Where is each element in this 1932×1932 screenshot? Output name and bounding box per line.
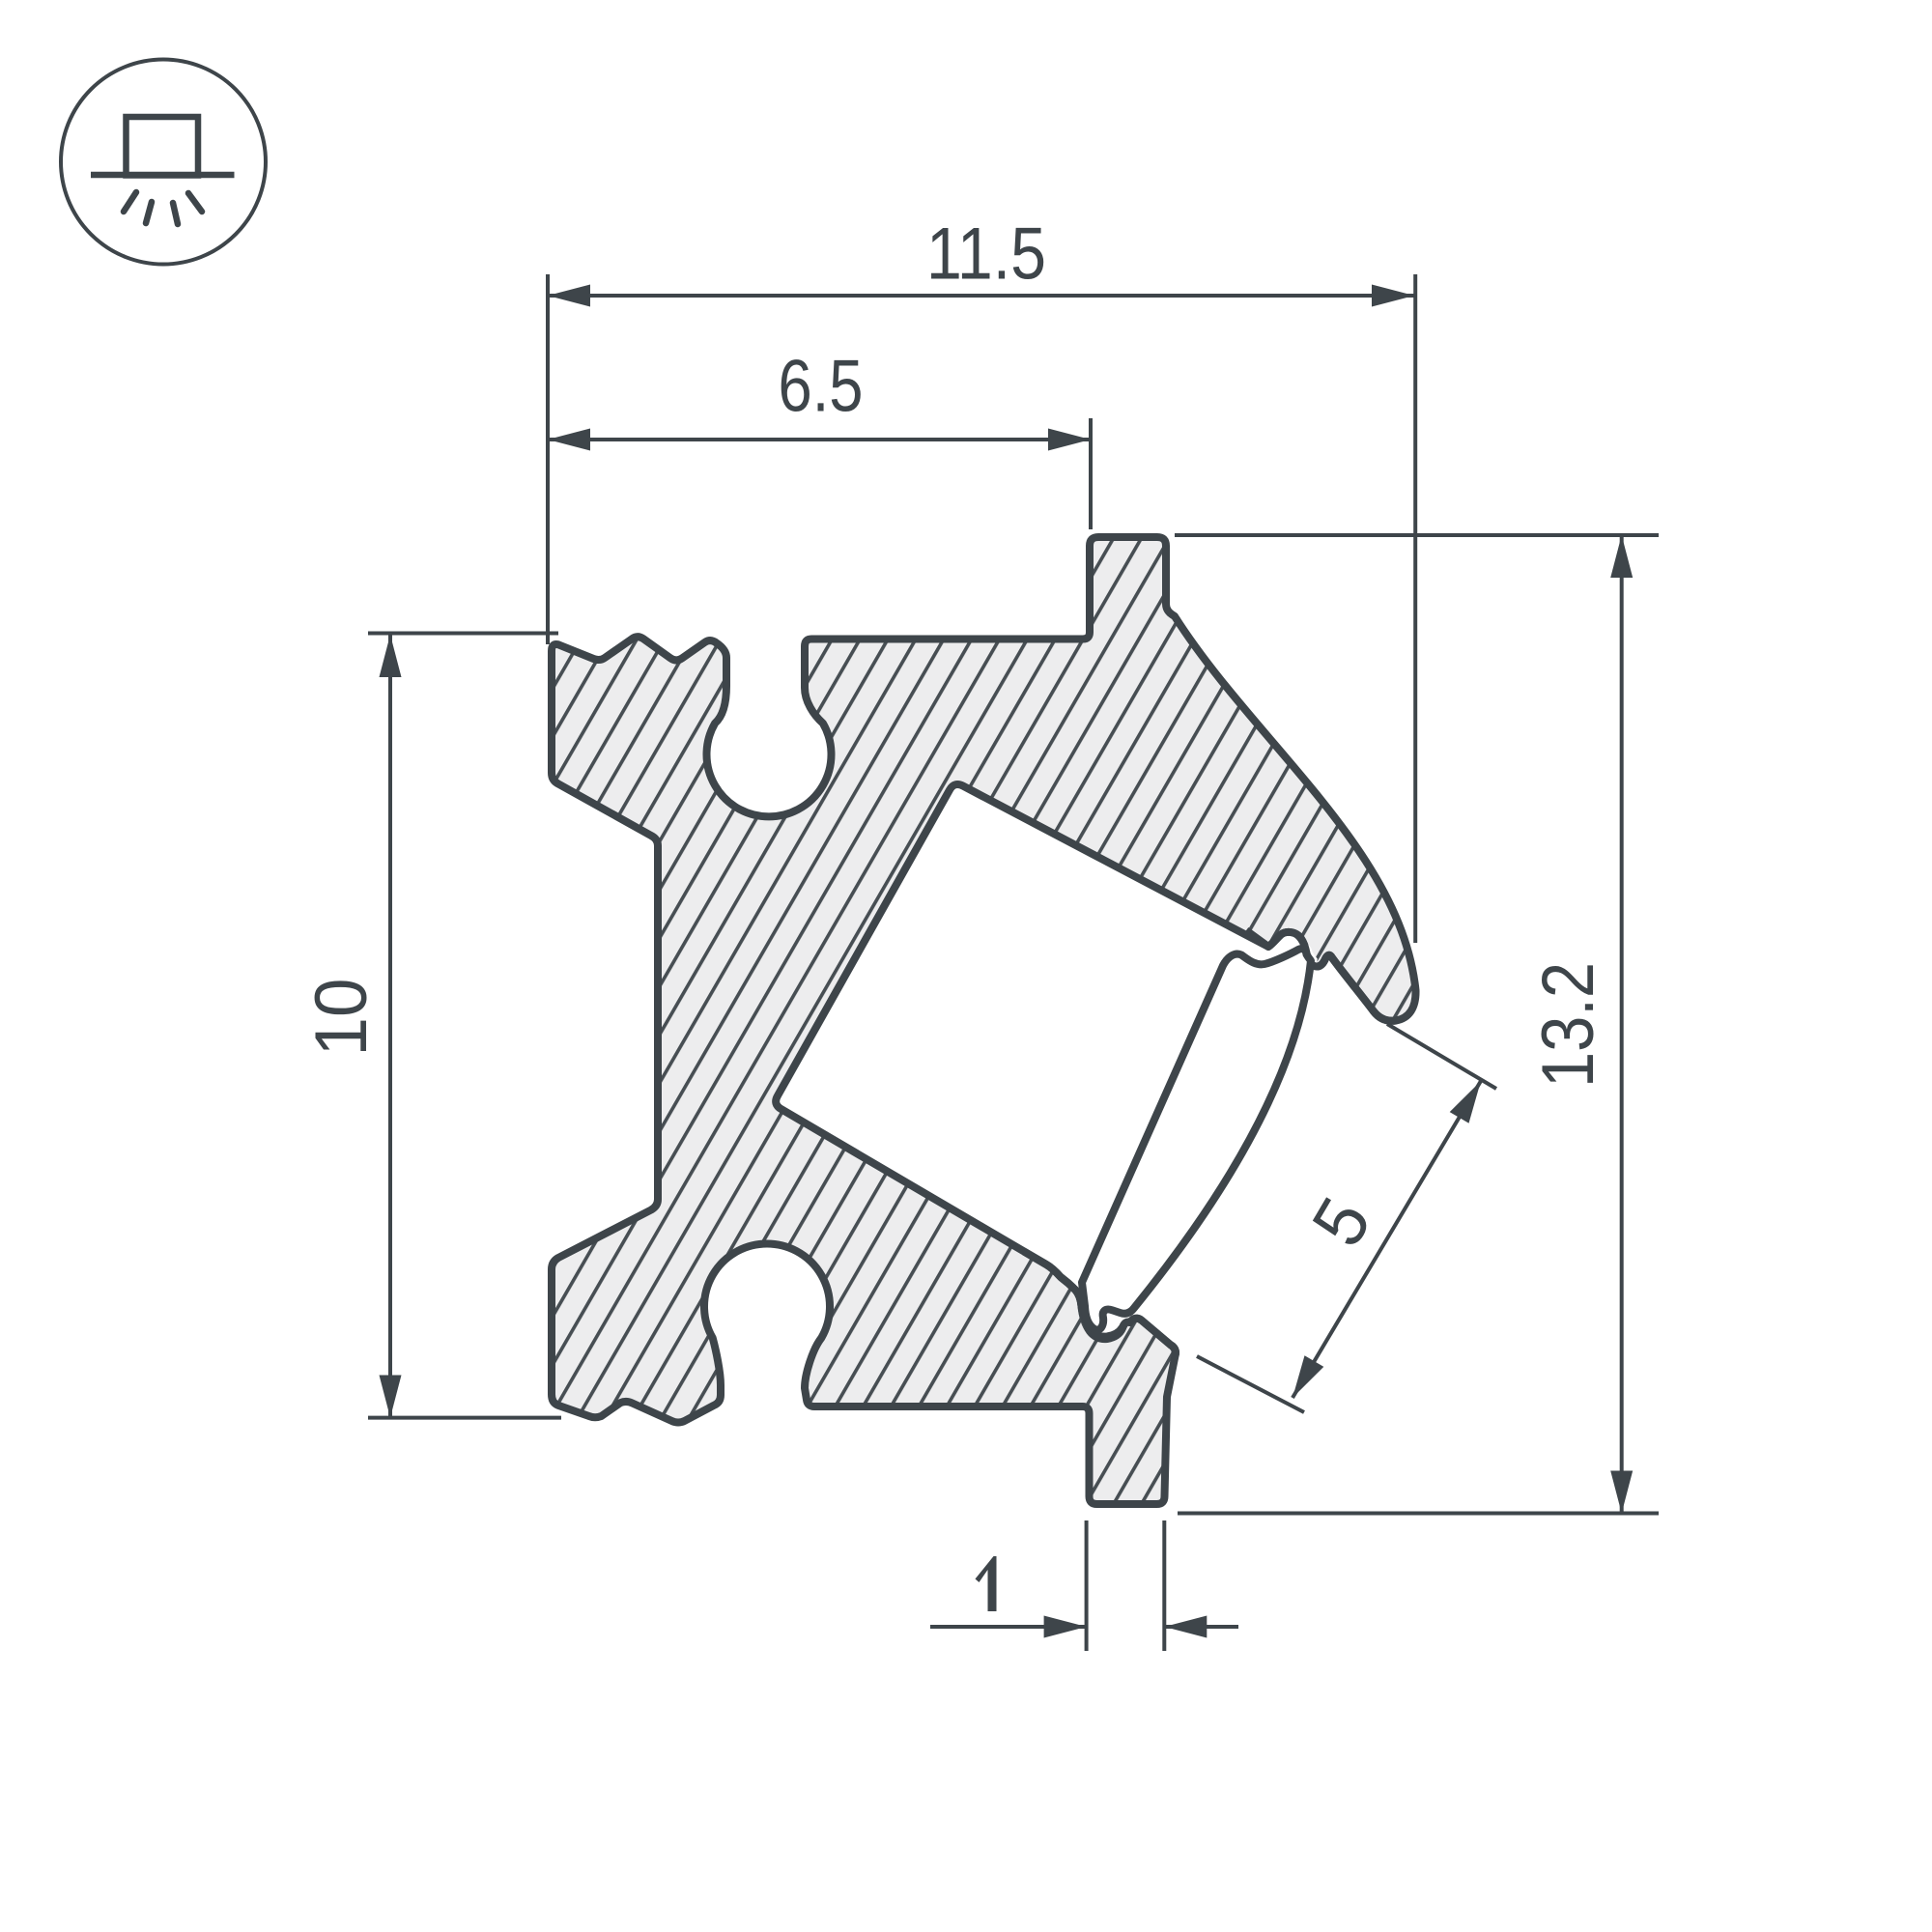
svg-text:10: 10 [300,979,383,1057]
svg-text:13.2: 13.2 [1527,962,1609,1088]
svg-text:11.5: 11.5 [926,213,1046,296]
svg-text:6.5: 6.5 [779,346,864,428]
